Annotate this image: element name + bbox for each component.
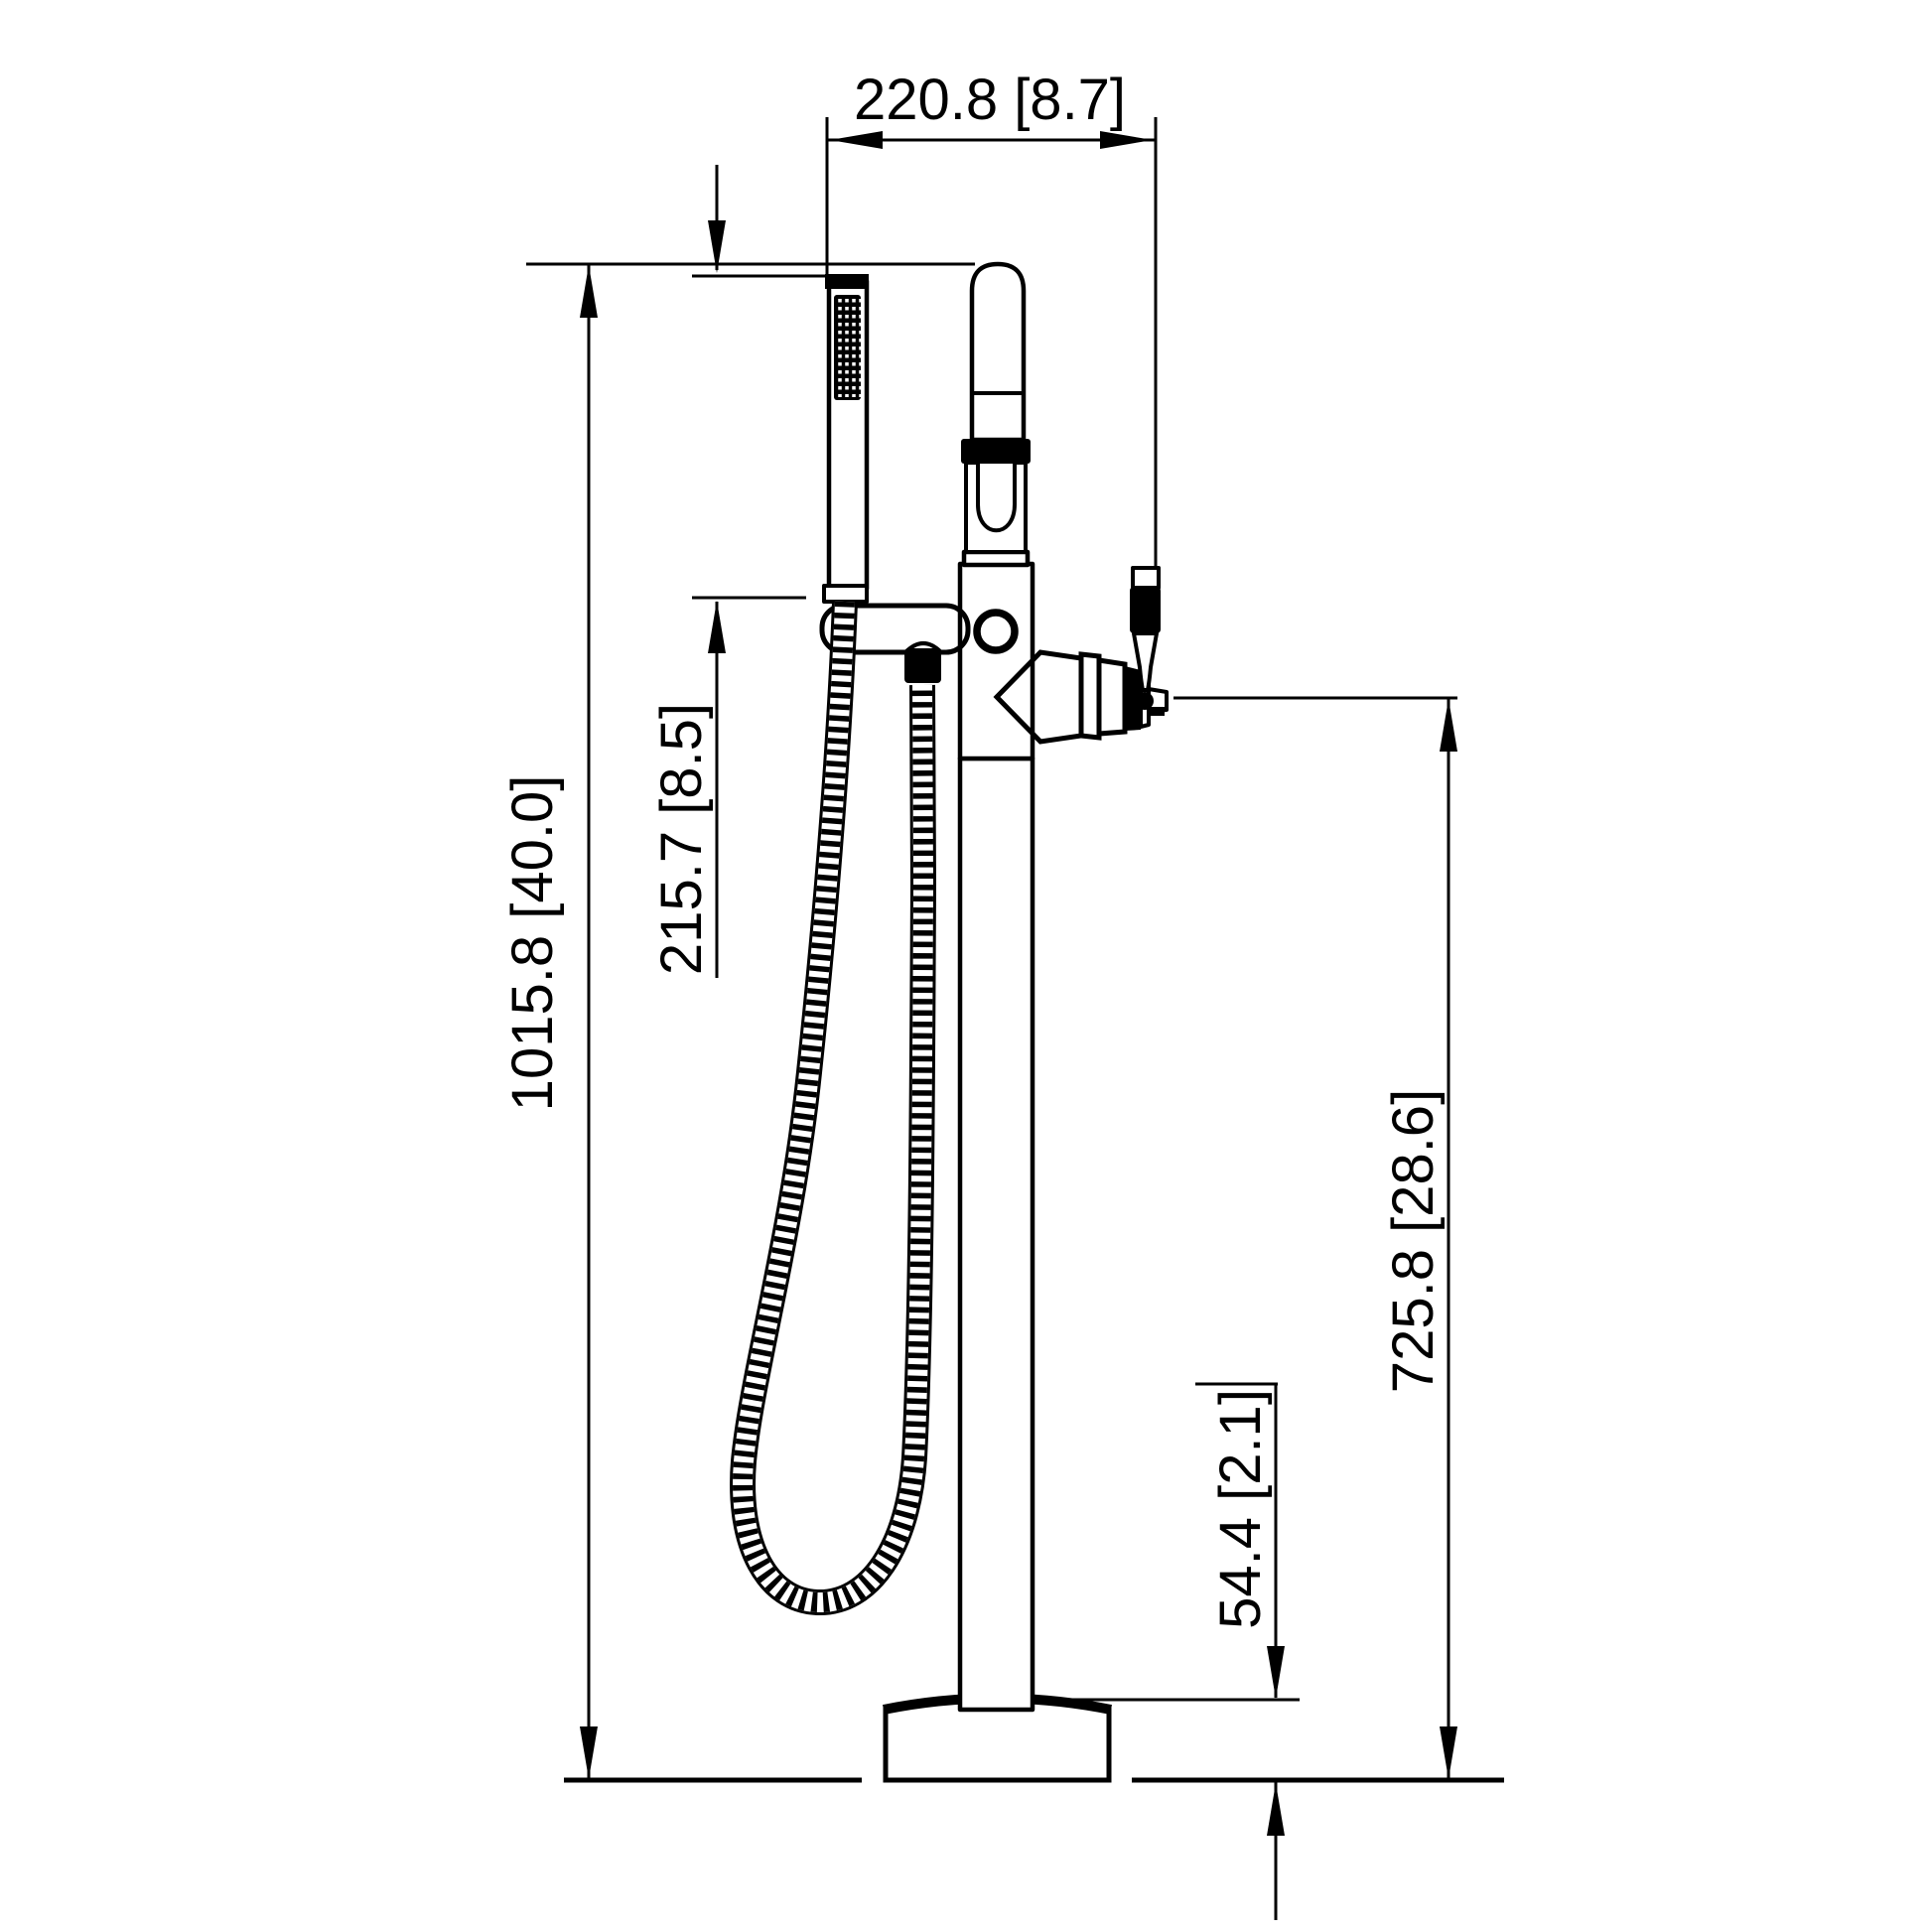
hose-connector [904, 643, 941, 683]
lever-grip [1130, 587, 1161, 633]
body-port-circle [977, 613, 1015, 650]
floor-column [960, 759, 1033, 1710]
dim-label-base-height: 54.4 [2.1] [1208, 1389, 1273, 1629]
riser-pipe [966, 264, 1026, 552]
handshower-wand [824, 274, 869, 602]
drawing-svg: 220.8 [8.7] 1015.8 [40.0] 215.7 [8.5] 72… [0, 0, 1932, 1932]
dim-base-height: 54.4 [2.1] [1049, 1384, 1300, 1920]
dim-handshower-length: 215.7 [8.5] [649, 165, 827, 978]
dim-label-total-height: 1015.8 [40.0] [500, 775, 565, 1112]
dim-label-top-width: 220.8 [8.7] [854, 68, 1126, 132]
dim-label-spout-height: 725.8 [28.6] [1381, 1089, 1446, 1393]
faucet-body [960, 552, 1033, 759]
dimension-drawing: 220.8 [8.7] 1015.8 [40.0] 215.7 [8.5] 72… [0, 0, 1932, 1932]
dim-label-handshower-length: 215.7 [8.5] [649, 703, 714, 975]
shower-hose [743, 602, 923, 1602]
cartridge-collar [961, 439, 1031, 464]
